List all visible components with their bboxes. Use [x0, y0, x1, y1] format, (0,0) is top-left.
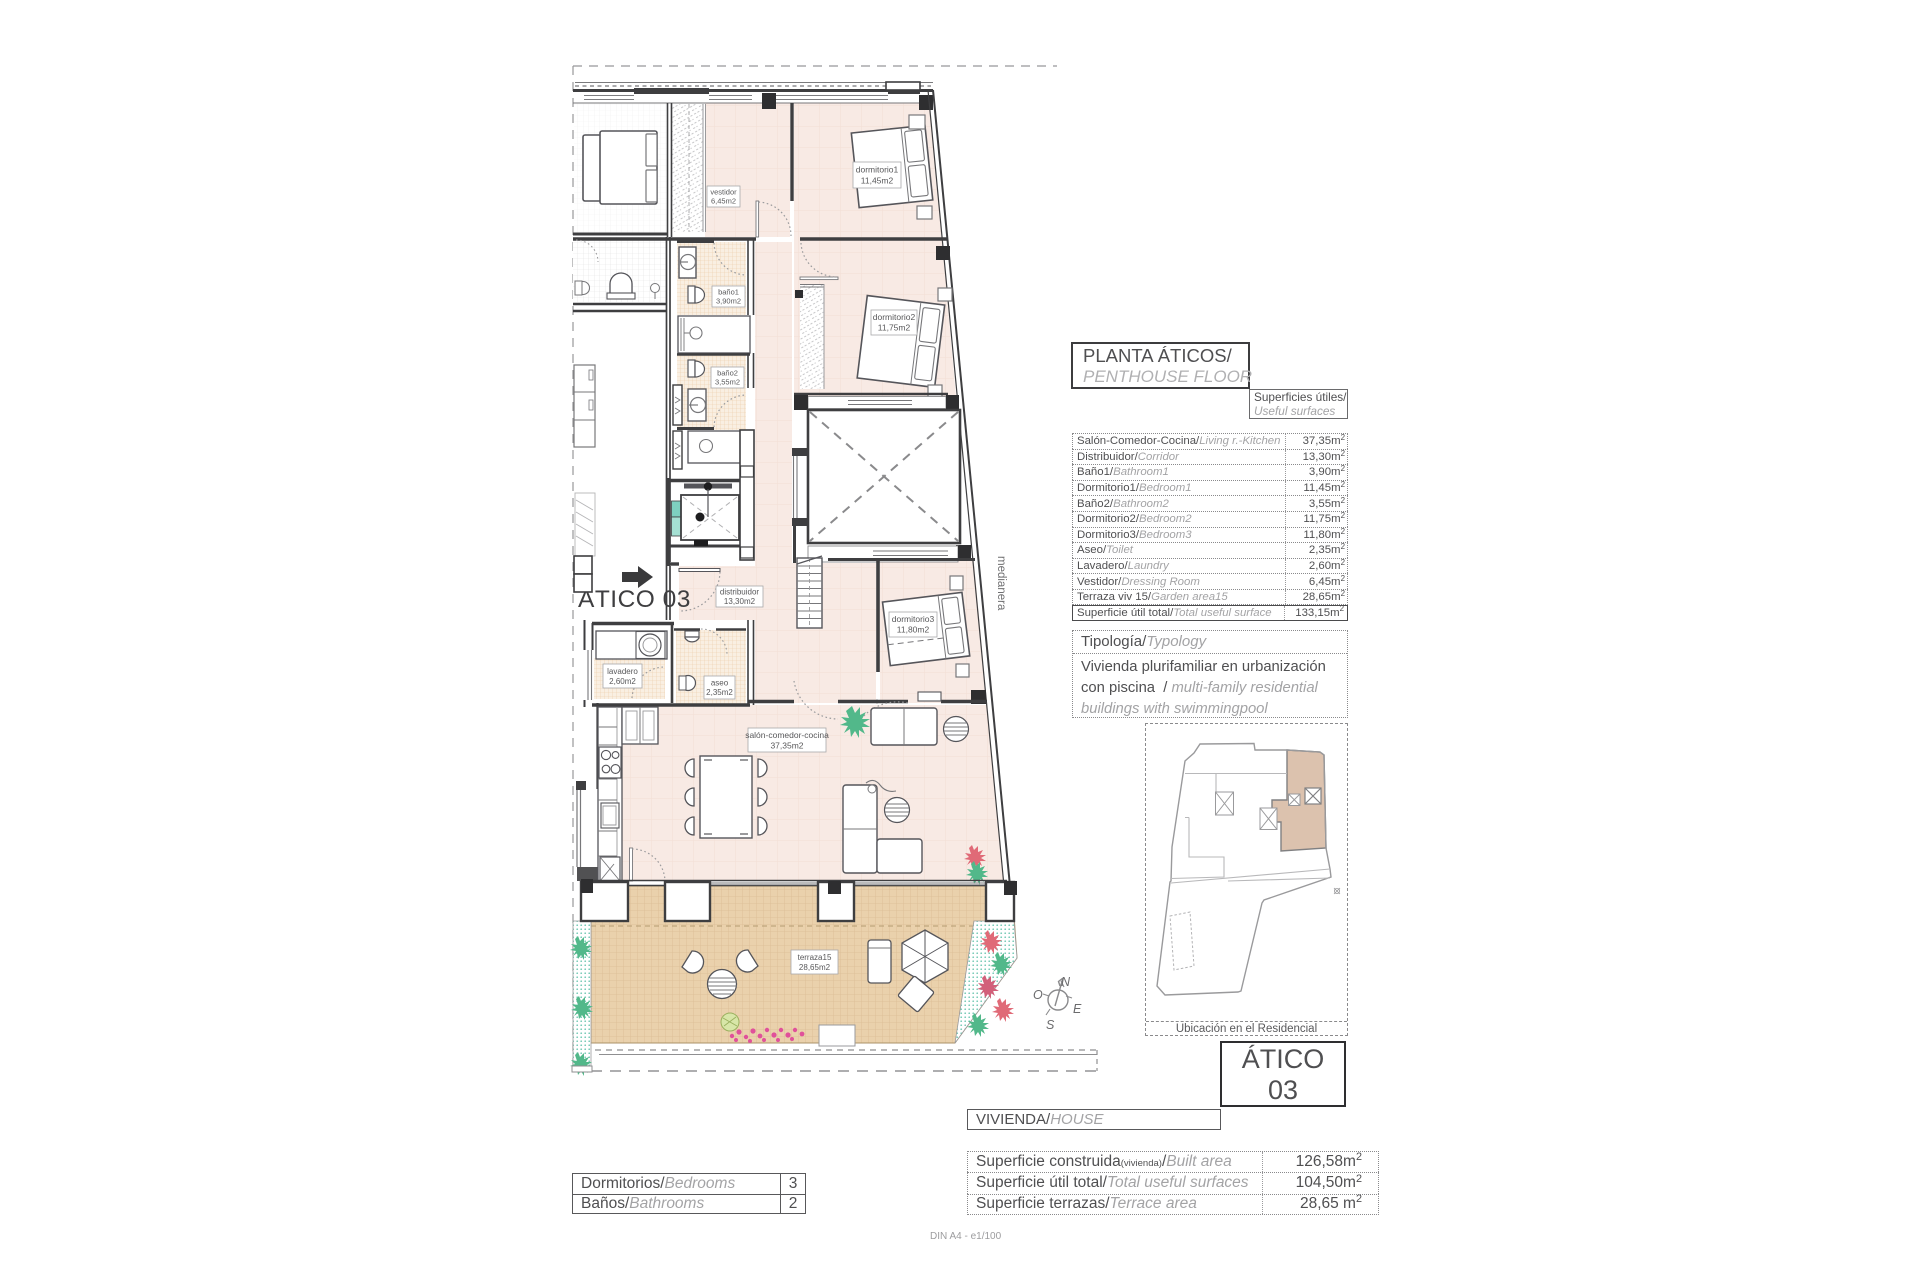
svg-text:ÁTICO 03: ÁTICO 03	[578, 586, 691, 613]
svg-text:37,35m2: 37,35m2	[770, 741, 803, 751]
svg-text:dormitorio3: dormitorio3	[892, 614, 935, 624]
svg-text:baño2: baño2	[717, 369, 738, 378]
svg-text:2,60m2: 2,60m2	[609, 677, 636, 686]
svg-text:lavadero: lavadero	[607, 667, 638, 676]
svg-text:N: N	[1061, 975, 1071, 989]
svg-text:aseo: aseo	[711, 679, 729, 688]
svg-text:E: E	[1073, 1002, 1082, 1016]
svg-text:3,55m2: 3,55m2	[715, 378, 740, 387]
svg-text:salón-comedor-cocina: salón-comedor-cocina	[745, 730, 829, 740]
svg-text:2,35m2: 2,35m2	[706, 688, 733, 697]
svg-text:distribuidor: distribuidor	[720, 588, 759, 597]
svg-text:medianera: medianera	[995, 556, 1007, 611]
svg-text:DIN A4 - e1/100: DIN A4 - e1/100	[930, 1231, 1002, 1242]
svg-text:11,80m2: 11,80m2	[897, 625, 930, 635]
svg-text:dormitorio1: dormitorio1	[856, 165, 899, 175]
svg-text:11,75m2: 11,75m2	[878, 323, 911, 333]
svg-text:S: S	[1046, 1018, 1055, 1032]
svg-text:6,45m2: 6,45m2	[711, 197, 736, 206]
svg-text:13,30m2: 13,30m2	[724, 597, 756, 606]
svg-text:3,90m2: 3,90m2	[716, 297, 741, 306]
svg-text:terraza15: terraza15	[798, 953, 832, 962]
svg-text:dormitorio2: dormitorio2	[873, 312, 916, 322]
svg-text:28,65m2: 28,65m2	[799, 963, 831, 972]
svg-text:vestidor: vestidor	[710, 188, 737, 197]
svg-text:baño1: baño1	[718, 288, 739, 297]
svg-text:11,45m2: 11,45m2	[861, 176, 894, 186]
svg-text:O: O	[1033, 988, 1043, 1002]
